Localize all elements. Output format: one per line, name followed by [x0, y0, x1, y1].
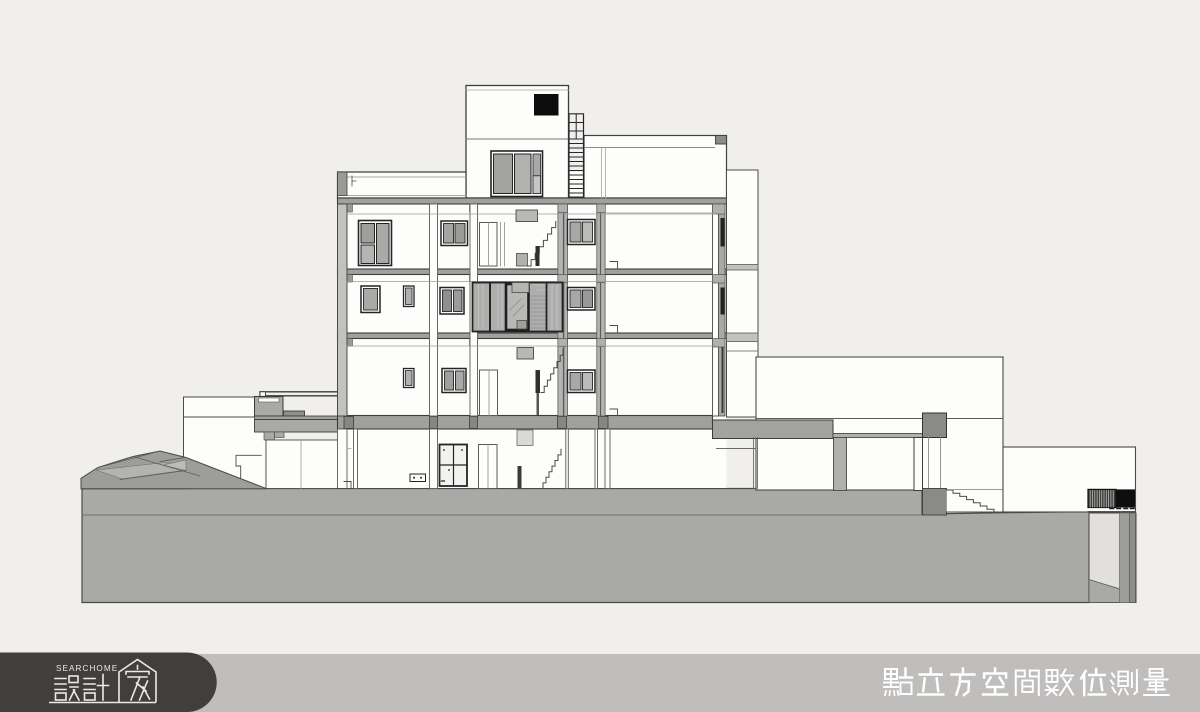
svg-text:SEARCHOME: SEARCHOME [56, 664, 118, 673]
